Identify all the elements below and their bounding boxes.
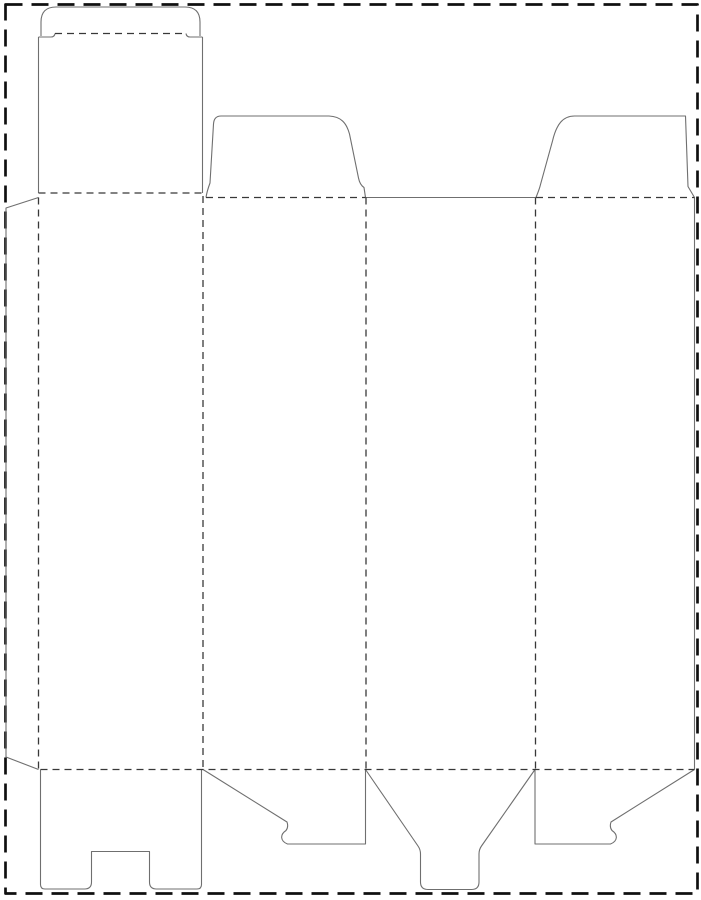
- bottom-hook-flap-right-cutline: [535, 770, 695, 845]
- dust-flap-right-cutline: [536, 116, 695, 198]
- page-canvas: [0, 0, 701, 900]
- page-border-dashed: [6, 5, 698, 894]
- box-dieline: [0, 0, 701, 900]
- bottom-tongue-flap-cutline: [366, 770, 536, 890]
- glue-flap-outline-cutline: [6, 198, 39, 770]
- bottom-hook-flap-left-cutline: [203, 770, 366, 845]
- dust-flap-left-cutline: [206, 116, 366, 198]
- bottom-lock-flap-cutline: [41, 770, 202, 890]
- tuck-flap-outline-cutline: [41, 7, 200, 36]
